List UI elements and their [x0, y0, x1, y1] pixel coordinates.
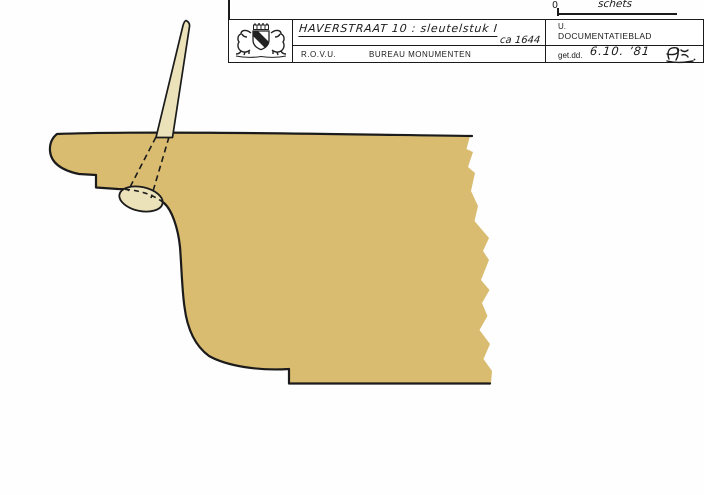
drawn-date-label: get.dd. [558, 51, 582, 60]
organisation-row: R.O.V.U. BUREAU MONUMENTEN [293, 46, 545, 62]
scale-note: 0 schets [540, 0, 690, 20]
scale-sketch-label: schets [597, 0, 632, 10]
peg-shaft [156, 21, 190, 138]
utrecht-coat-of-arms-icon [233, 23, 289, 59]
document-type-row: U. DOCUMENTATIEBLAD [546, 20, 703, 46]
signature-monogram [663, 46, 697, 64]
doc-type-line2: DOCUMENTATIEBLAD [558, 31, 652, 41]
scale-tick [557, 8, 559, 16]
document-cell: U. DOCUMENTATIEBLAD get.dd. 6.10. ’81 [546, 20, 703, 62]
org-name: BUREAU MONUMENTEN [369, 50, 471, 59]
project-row: HAVERSTRAAT 10 : sleutelstuk I ca 1644 [293, 20, 545, 46]
title-cell: HAVERSTRAAT 10 : sleutelstuk I ca 1644 R… [293, 20, 546, 62]
sleutelstuk-profile-drawing [0, 0, 704, 495]
beam-profile-fill [50, 133, 492, 384]
project-title: HAVERSTRAAT 10 : sleutelstuk I [298, 22, 498, 37]
title-block: HAVERSTRAAT 10 : sleutelstuk I ca 1644 R… [228, 19, 704, 63]
circa-date: ca 1644 [499, 35, 540, 46]
drawn-date-value: 6.10. ’81 [589, 44, 650, 58]
org-abbreviation: R.O.V.U. [301, 50, 369, 59]
documentation-sheet: 0 schets [0, 0, 704, 495]
scale-line [557, 13, 677, 15]
date-signature-row: get.dd. 6.10. ’81 [546, 46, 703, 62]
coat-of-arms-cell [229, 20, 293, 62]
title-block-top-tick [228, 0, 230, 20]
